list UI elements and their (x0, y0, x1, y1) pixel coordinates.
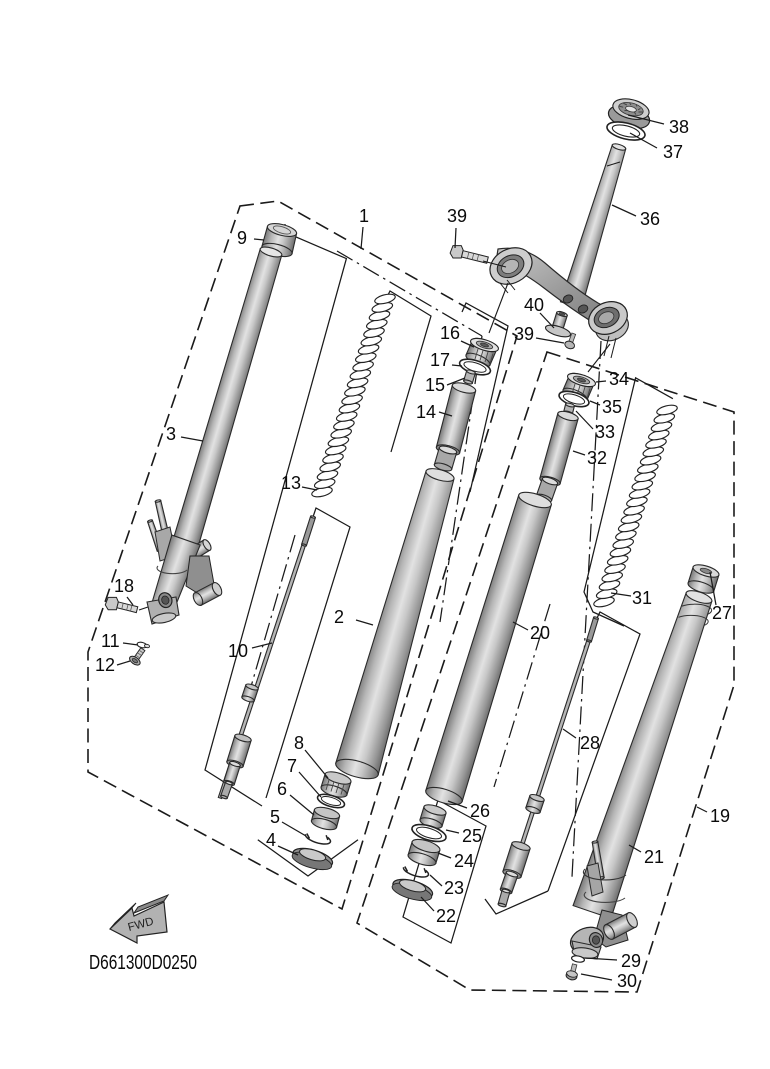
svg-text:5: 5 (270, 807, 280, 827)
svg-text:11: 11 (101, 631, 120, 651)
svg-text:19: 19 (710, 806, 730, 826)
svg-text:20: 20 (530, 623, 550, 643)
svg-text:33: 33 (595, 422, 615, 442)
svg-text:2: 2 (334, 607, 344, 627)
svg-text:22: 22 (436, 906, 456, 926)
svg-text:14: 14 (416, 402, 436, 422)
svg-text:28: 28 (580, 733, 600, 753)
svg-text:24: 24 (454, 851, 474, 871)
svg-text:40: 40 (524, 295, 544, 315)
svg-text:31: 31 (632, 588, 652, 608)
svg-text:1: 1 (359, 206, 369, 226)
svg-text:36: 36 (640, 209, 660, 229)
svg-text:29: 29 (621, 951, 641, 971)
svg-text:21: 21 (644, 847, 664, 867)
svg-text:38: 38 (669, 117, 689, 137)
svg-text:39: 39 (447, 206, 467, 226)
svg-text:3: 3 (166, 424, 176, 444)
svg-text:34: 34 (609, 369, 629, 389)
svg-text:16: 16 (440, 323, 460, 343)
svg-text:9: 9 (237, 228, 247, 248)
svg-text:26: 26 (470, 801, 490, 821)
svg-text:27: 27 (712, 603, 732, 623)
svg-text:23: 23 (444, 878, 464, 898)
svg-text:17: 17 (430, 350, 450, 370)
svg-text:8: 8 (294, 733, 304, 753)
svg-text:10: 10 (228, 641, 248, 661)
svg-text:25: 25 (462, 826, 482, 846)
svg-text:4: 4 (266, 830, 276, 850)
svg-text:13: 13 (281, 473, 301, 493)
svg-text:30: 30 (617, 971, 637, 991)
svg-text:37: 37 (663, 142, 683, 162)
svg-text:7: 7 (287, 756, 297, 776)
svg-text:35: 35 (602, 397, 622, 417)
svg-text:39: 39 (514, 324, 534, 344)
svg-text:12: 12 (95, 655, 115, 675)
svg-text:15: 15 (425, 375, 445, 395)
svg-text:32: 32 (587, 448, 607, 468)
svg-text:6: 6 (277, 779, 287, 799)
svg-text:D661300D0250: D661300D0250 (89, 951, 197, 974)
svg-text:18: 18 (114, 576, 134, 596)
